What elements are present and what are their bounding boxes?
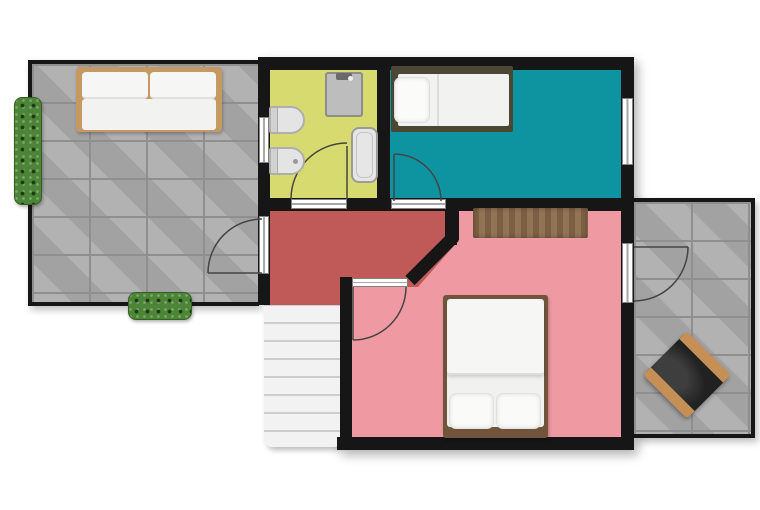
- single-bed-pillow: [394, 77, 430, 123]
- bidet-tank: [271, 149, 278, 173]
- wall-bathroom-east: [377, 70, 390, 211]
- bathroom-window: [259, 117, 269, 163]
- double-bed-pillow-right: [496, 393, 541, 429]
- right-terrace-door-threshold: [622, 243, 633, 303]
- bathtub: [351, 127, 378, 183]
- rug: [473, 208, 588, 238]
- bathroom-door-threshold: [291, 199, 347, 209]
- shower-knob: [348, 76, 353, 81]
- terrace-door-threshold: [259, 216, 269, 274]
- sofa-back-cushion-right: [150, 72, 216, 99]
- small-bedroom-window: [622, 98, 633, 165]
- wall-stairs-east: [340, 277, 352, 450]
- floor-plan: [0, 0, 760, 510]
- staircase: [264, 304, 342, 447]
- double-bed-pillow-left: [449, 393, 494, 429]
- bidet-faucet: [293, 159, 298, 164]
- double-bed-duvet: [447, 299, 544, 375]
- toilet: [269, 106, 305, 134]
- bathtub-rim: [356, 132, 373, 178]
- shower-unit: [325, 72, 363, 117]
- hedge-planter: [128, 292, 192, 320]
- main-bedroom-door-threshold: [352, 278, 408, 287]
- small-bedroom-door-threshold: [391, 199, 446, 209]
- double-bed: [443, 295, 548, 438]
- toilet-tank: [271, 108, 278, 132]
- single-bed: [391, 66, 513, 132]
- sofa-back-cushion-left: [82, 72, 148, 99]
- sofa: [76, 67, 222, 132]
- wall-planter: [14, 97, 42, 205]
- single-bed-sheet-fold: [437, 74, 439, 126]
- bidet: [269, 147, 305, 175]
- wall-south: [337, 437, 634, 450]
- sofa-seat-cushion: [82, 99, 216, 130]
